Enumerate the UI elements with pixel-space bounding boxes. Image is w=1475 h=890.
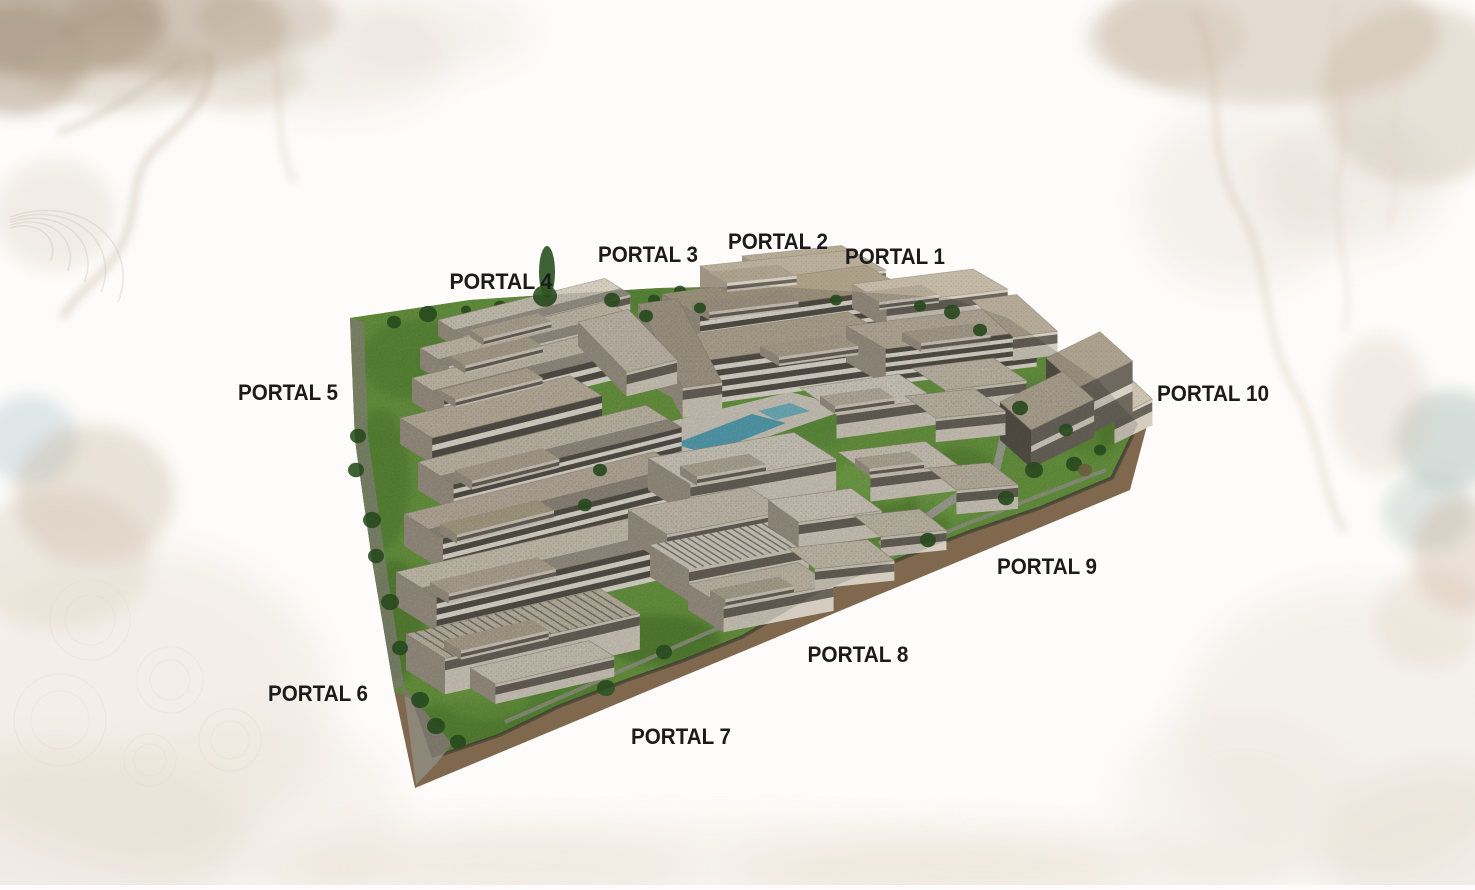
svg-text:PORTAL 1: PORTAL 1 xyxy=(845,244,945,269)
svg-text:PORTAL 7: PORTAL 7 xyxy=(631,724,731,749)
svg-text:PORTAL 2: PORTAL 2 xyxy=(728,229,828,254)
svg-text:PORTAL 8: PORTAL 8 xyxy=(808,642,909,667)
svg-text:PORTAL 10: PORTAL 10 xyxy=(1157,381,1269,406)
svg-text:PORTAL 3: PORTAL 3 xyxy=(598,242,698,267)
svg-text:PORTAL 6: PORTAL 6 xyxy=(268,681,368,706)
svg-text:PORTAL 5: PORTAL 5 xyxy=(238,380,338,405)
svg-text:PORTAL 9: PORTAL 9 xyxy=(997,554,1097,579)
svg-text:PORTAL 4: PORTAL 4 xyxy=(450,269,554,294)
